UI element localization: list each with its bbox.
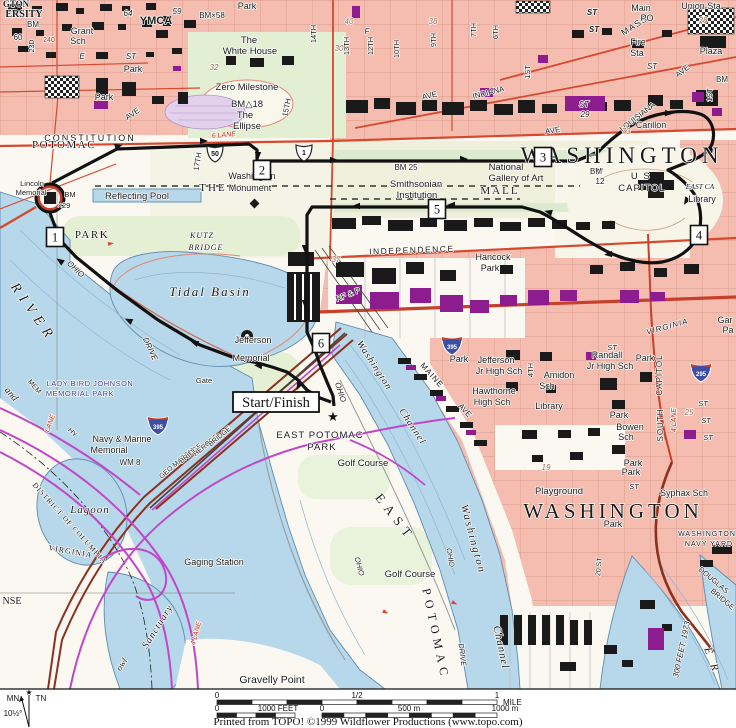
route-marker-number: 2 [259, 164, 265, 178]
map-label: EAST POTOMAC [276, 430, 363, 441]
map-label: 59 [173, 7, 182, 16]
map-label: BRIDGE [189, 243, 224, 252]
map-label: 9TH [429, 33, 438, 47]
route-marker-1: 1 [47, 228, 64, 247]
map-label: ST [703, 433, 714, 442]
map-label: Grant [71, 26, 94, 36]
map-label: ST [647, 62, 658, 71]
map-label: Memorial [16, 188, 47, 197]
map-label: Sch [618, 432, 634, 442]
map-label: Library [535, 401, 563, 411]
map-label: 38 [429, 17, 438, 26]
map-label: White House [223, 46, 277, 57]
map-label: MALL [480, 185, 519, 197]
map-label: POTOMAC [32, 139, 96, 151]
map-label: SOUTH [656, 409, 665, 442]
map-label: GTON [3, 0, 30, 9]
map-label: 4 LANE [671, 408, 678, 432]
scale-bar-tick-label: 500 m [398, 704, 421, 713]
map-label: THE [199, 182, 226, 194]
map-label: Reflecting Pool [105, 191, 169, 202]
map-label: Jr High Sch [476, 366, 523, 376]
map-label: 19 [542, 463, 551, 472]
map-label: CAPITOL [655, 354, 664, 395]
map-label: Union Sta [681, 1, 721, 11]
topo-map-page: GTONERSITYBM6023D240GrantSchYMCA6459BM×5… [0, 0, 736, 728]
map-label: Sta [630, 48, 644, 58]
map-label: Navy & Marine [92, 434, 151, 444]
map-label: WM 8 [120, 458, 141, 467]
map-label: National [489, 162, 524, 173]
route-marker-3: 3 [535, 148, 552, 167]
map-label: Hawthorne [472, 386, 516, 396]
map-label: ST [587, 8, 598, 17]
scale-bar-tick-label: 0 [320, 704, 325, 713]
topo-map: GTONERSITYBM6023D240GrantSchYMCA6459BM×5… [0, 0, 736, 728]
map-label: BM [64, 190, 75, 199]
shield-number: 395 [447, 345, 458, 351]
map-label: CAPITOL [618, 183, 665, 194]
map-label: ST [579, 100, 590, 109]
map-label: 32 [210, 63, 219, 72]
map-label: Park [604, 519, 623, 529]
map-label: 12TH [366, 37, 375, 55]
map-label: BM△18 [231, 99, 263, 110]
map-label: Ellipse [233, 121, 261, 132]
map-label: Library [688, 194, 716, 204]
shield-number: 50 [211, 151, 219, 158]
scale-bar-segment [322, 700, 357, 705]
map-label: Park [238, 1, 257, 11]
map-label: BM [27, 20, 39, 29]
map-label: 64 [124, 9, 133, 18]
map-label: Golf Course [338, 458, 389, 469]
map-label: Main [631, 3, 651, 13]
map-label: Playground [535, 486, 583, 497]
map-label: Park [124, 64, 143, 74]
map-label: 14TH [309, 25, 318, 43]
map-label: EAST CA [685, 182, 715, 191]
map-label: YMCA [140, 15, 172, 27]
scale-bar-tick-label: 1/2 [351, 691, 363, 700]
compass-declination-label: 10½° [4, 709, 23, 718]
map-label: 6TH [491, 25, 500, 39]
map-label: Gaging Station [184, 557, 244, 567]
map-label: Sch [539, 381, 555, 391]
compass-mn-label: MN [7, 694, 20, 703]
map-margin: ★ MN TN 10½° 01/21MILE01000 FEET0500 m10… [0, 688, 736, 728]
map-label: Bowen [616, 422, 644, 432]
map-label: Smithsonian [390, 179, 442, 190]
map-label: BM 25 [394, 163, 418, 172]
map-label: WASHINGTON [678, 531, 736, 538]
map-label: NSE [3, 596, 22, 607]
start-finish-star-icon: ★ [327, 409, 339, 424]
map-label: Park [450, 354, 469, 364]
map-label: Fire [630, 37, 646, 47]
route-marker-number: 4 [696, 229, 703, 243]
map-label: 60 [14, 33, 23, 42]
map-label: BM [716, 75, 728, 84]
map-label: The [241, 35, 257, 46]
map-label: PARK [307, 442, 336, 453]
map-label: Tidal Basin [169, 284, 251, 299]
map-label: 10TH [392, 40, 401, 58]
map-label: Gate [196, 376, 212, 385]
map-label: Pa [722, 325, 733, 335]
scale-bar-tick-label: 0 [215, 704, 220, 713]
route-marker-4: 4 [691, 226, 708, 245]
compass-tn-label: TN [36, 694, 47, 703]
map-label: Jr High Sch [587, 361, 634, 371]
map-label: ST [607, 343, 618, 352]
map-label: Park [481, 263, 500, 273]
route-marker-number: 6 [318, 337, 324, 351]
map-label: Memorial [90, 445, 127, 455]
map-label: Hancock [475, 252, 511, 262]
map-label: Park [636, 353, 655, 363]
map-label: Jefferson [478, 355, 515, 365]
map-label: Park [610, 410, 629, 420]
route-marker-number: 1 [52, 231, 58, 245]
map-label: LADY BIRD JOHNSON [47, 379, 134, 388]
start-finish-label: Start/Finish [242, 395, 310, 411]
map-label: Lincoln [20, 179, 44, 188]
route-marker-2: 2 [254, 161, 271, 180]
map-label: E [79, 52, 85, 61]
map-label: KUTZ [189, 231, 214, 240]
route-marker-6: 6 [313, 334, 330, 353]
map-label: Gar [717, 315, 732, 325]
map-label: ST [698, 399, 709, 408]
map-label: Syphax Sch [660, 488, 708, 498]
map-label: Sch [70, 36, 86, 46]
map-label: Gravelly Point [239, 674, 304, 686]
scale-bar-segment [217, 700, 252, 705]
map-label: 1ST [705, 88, 714, 102]
map-label: NAVY YARD [685, 541, 733, 548]
map-label: 40 [345, 17, 354, 26]
map-label: Park [622, 467, 641, 477]
map-label: 25 [684, 408, 694, 417]
credit-line: Printed from TOPO! ©1999 Wildflower Prod… [213, 716, 522, 728]
map-label: ST [589, 25, 600, 34]
map-label: ERSITY [5, 9, 43, 20]
map-label: 73 [622, 127, 631, 136]
scale-bar-segment [427, 700, 462, 705]
map-label: The [237, 110, 253, 121]
map-label: 240 [43, 37, 55, 44]
map-label: High Sch [474, 397, 511, 407]
map-label: Plaza [700, 46, 723, 56]
scale-bar-tick-label: 0 [215, 691, 220, 700]
map-label: BM [590, 167, 602, 176]
map-label: Zero Milestone [216, 82, 279, 93]
map-label: 1ST [523, 65, 532, 79]
map-label: Jefferson [235, 335, 272, 345]
map-label: 12 [596, 177, 605, 186]
scale-bar-tick-label: 1000 FEET [258, 704, 299, 713]
map-label: Monument [229, 183, 272, 193]
tn-star-icon: ★ [25, 688, 32, 697]
map-label: ST [701, 416, 712, 425]
map-label: PARK [75, 229, 109, 241]
shield-number: 295 [696, 372, 707, 378]
map-label: U S [631, 171, 651, 182]
map-label: ST [126, 52, 137, 61]
map-label: Amidon [544, 370, 575, 380]
map-label: Carillon [636, 120, 667, 130]
map-label: 38 [699, 16, 708, 25]
route-marker-5: 5 [429, 200, 446, 219]
scale-bar-tick-label: 1 [495, 691, 500, 700]
route-marker-number: 3 [540, 151, 546, 165]
map-label: MEMORIAL PARK [46, 389, 114, 398]
map-label: 4TH [526, 363, 535, 377]
map-label: 23D [29, 40, 36, 53]
route-marker-number: 5 [434, 203, 440, 217]
map-label: Lagoon [69, 504, 110, 516]
scale-bar-tick-label: 1000 m [492, 704, 519, 713]
map-label: Gallery of Art [489, 173, 544, 184]
map-label: 7TH [469, 23, 478, 37]
map-label: PO [640, 13, 653, 23]
shield-number: 1 [302, 150, 306, 157]
shield-number: 395 [153, 425, 164, 431]
map-label: 37 [332, 255, 341, 264]
map-label: Park [95, 92, 114, 102]
map-label: BM×58 [199, 11, 225, 20]
map-label: ×29 [58, 201, 71, 210]
map-label: 30 [335, 44, 344, 53]
map-label: Memorial [232, 353, 269, 363]
map-label: 29 [580, 110, 590, 119]
map-label: Golf Course [385, 569, 436, 580]
scale-bar-segment [357, 700, 392, 705]
map-label: ST [629, 482, 640, 491]
